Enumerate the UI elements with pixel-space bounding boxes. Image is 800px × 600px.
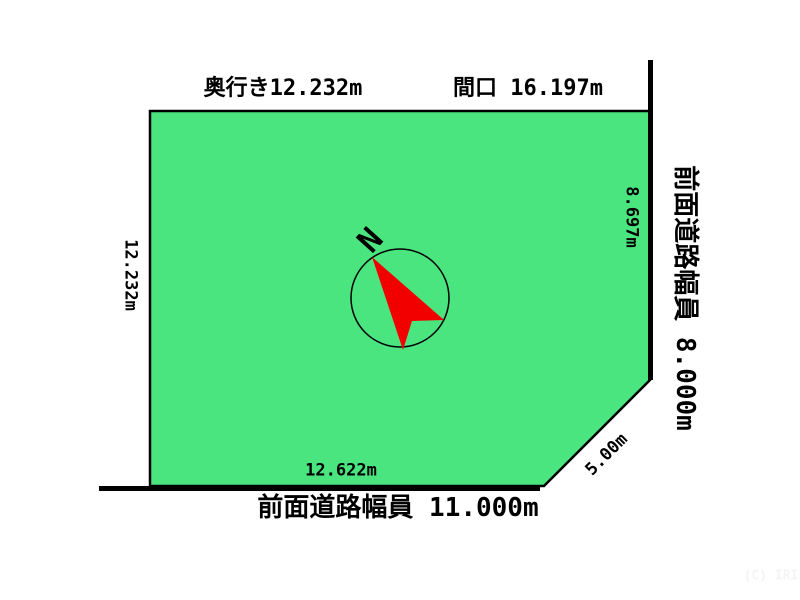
right-road-width-label: 前面道路幅員 8.000m bbox=[672, 165, 698, 431]
lot-diagram-canvas: 奥行き12.232m 間口 16.197m 12.232m 8.697m 前面道… bbox=[0, 0, 800, 600]
frontage-label: 間口 16.197m bbox=[453, 78, 603, 100]
bottom-side-measurement: 12.622m bbox=[305, 463, 377, 480]
bottom-road-width-label: 前面道路幅員 11.000m bbox=[257, 495, 538, 521]
copyright-watermark: (C) IRI bbox=[744, 569, 799, 584]
right-side-measurement: 8.697m bbox=[623, 186, 640, 247]
left-side-measurement: 12.232m bbox=[122, 239, 139, 311]
depth-label: 奥行き12.232m bbox=[204, 78, 363, 100]
